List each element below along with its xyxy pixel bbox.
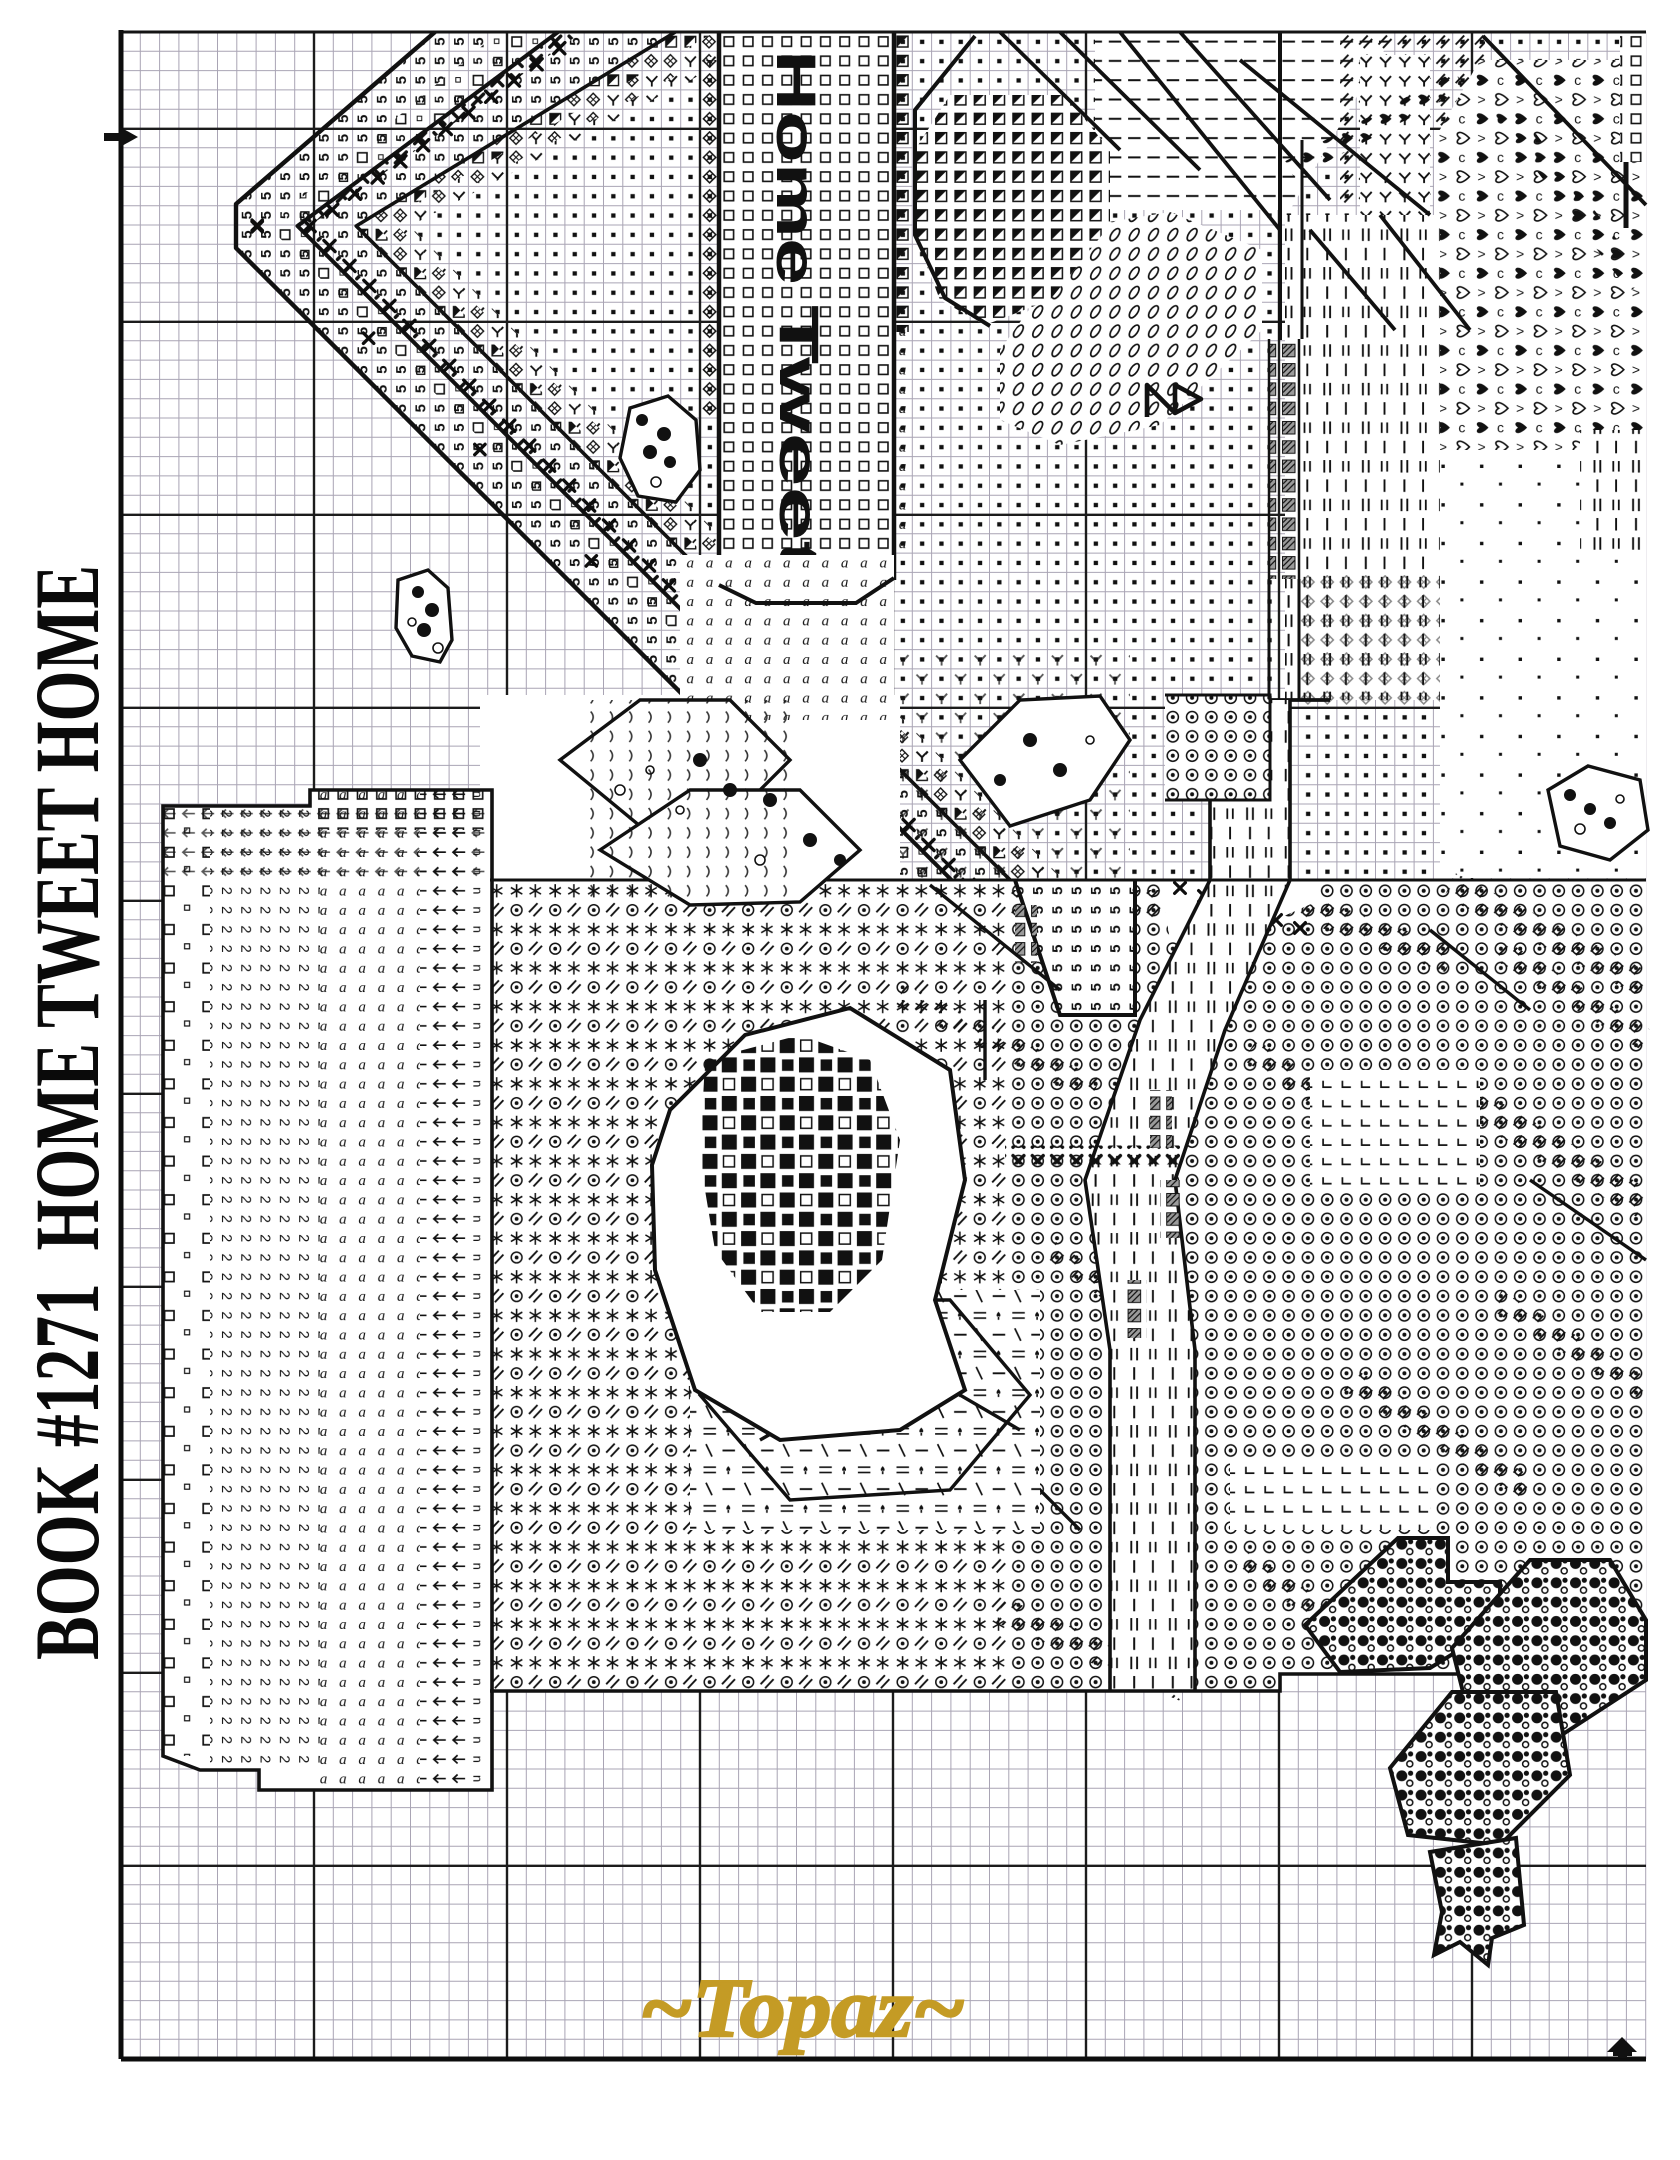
svg-text:~Topaz~: ~Topaz~ [640,1962,965,2055]
svg-text:BOOK #1271 HOME TWEET HOME: BOOK #1271 HOME TWEET HOME [16,565,118,1660]
svg-text:Home: Home [765,50,828,285]
svg-text:Tweet: Tweet [768,305,831,573]
